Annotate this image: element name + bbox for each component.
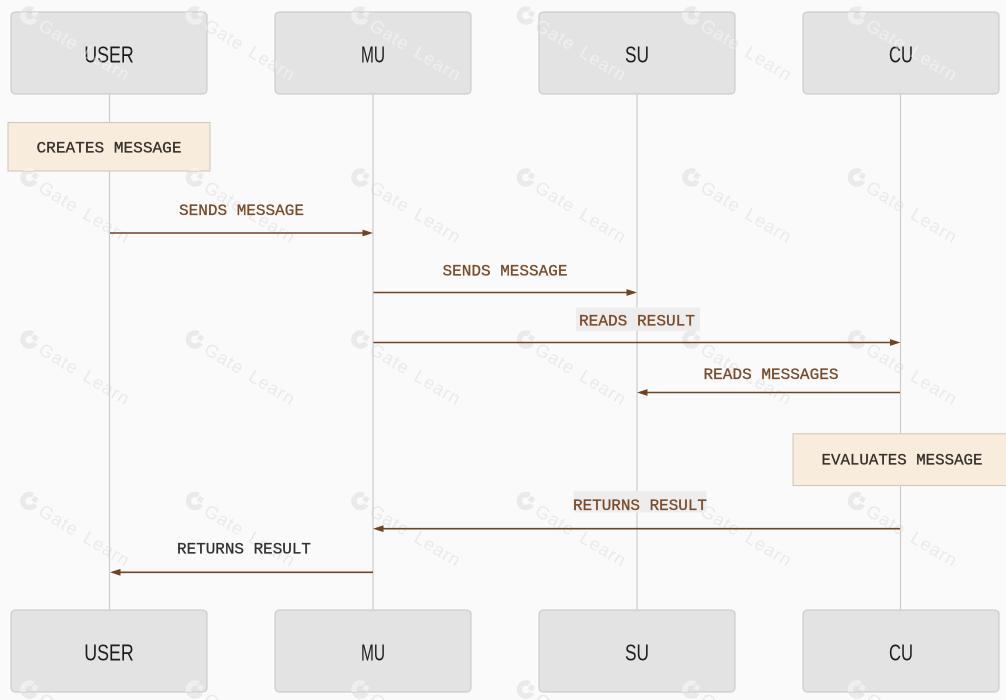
svg-text:MU: MU — [361, 640, 385, 666]
svg-text:CU: CU — [889, 640, 913, 666]
svg-text:SU: SU — [625, 42, 649, 68]
svg-text:READS RESULT: READS RESULT — [579, 313, 695, 331]
svg-text:CREATES MESSAGE: CREATES MESSAGE — [37, 140, 182, 158]
svg-text:RETURNS RESULT: RETURNS RESULT — [177, 541, 311, 559]
svg-text:EVALUATES MESSAGE: EVALUATES MESSAGE — [822, 452, 983, 470]
svg-text:MU: MU — [361, 42, 385, 68]
svg-text:SENDS MESSAGE: SENDS MESSAGE — [443, 263, 568, 281]
svg-text:USER: USER — [84, 640, 134, 666]
svg-text:SENDS MESSAGE: SENDS MESSAGE — [179, 202, 304, 220]
svg-text:SU: SU — [625, 640, 649, 666]
svg-text:READS MESSAGES: READS MESSAGES — [704, 366, 839, 384]
svg-text:RETURNS RESULT: RETURNS RESULT — [573, 497, 707, 515]
